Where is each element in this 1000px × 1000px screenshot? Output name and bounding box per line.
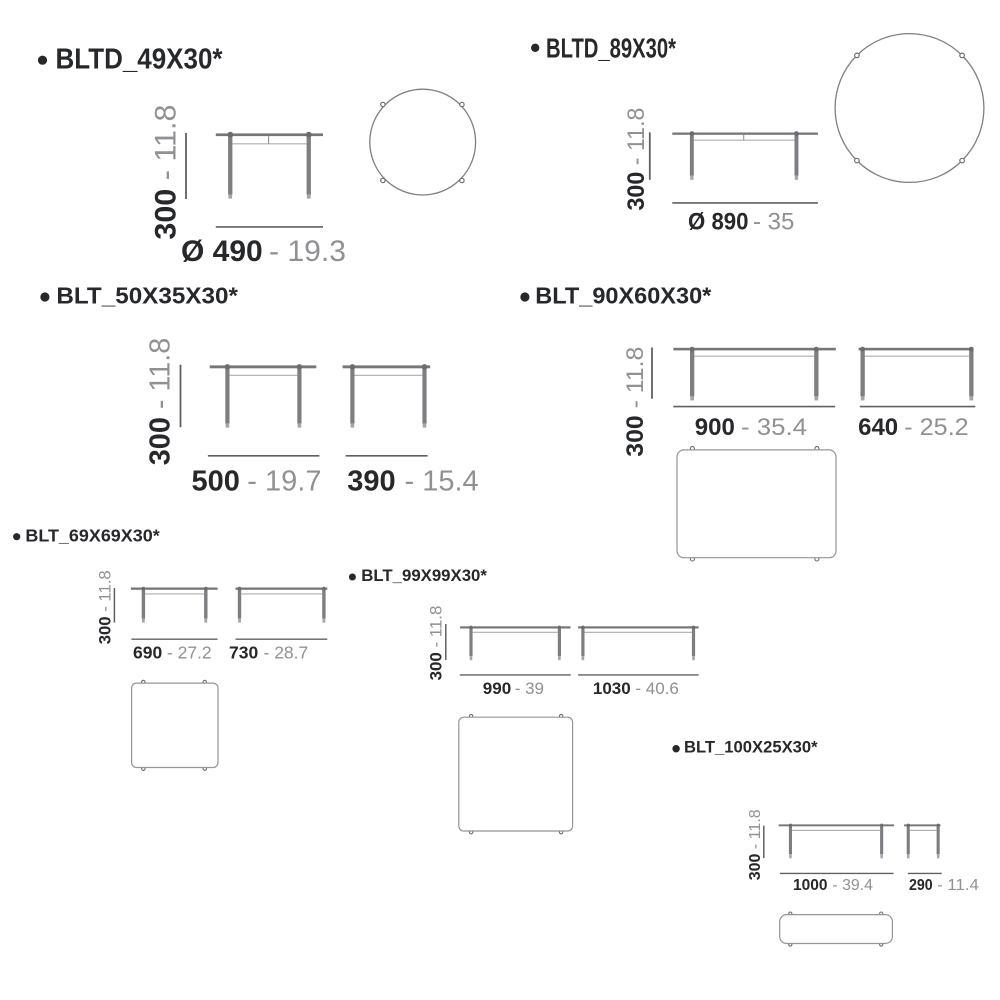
svg-text:BLTD_49X30*: BLTD_49X30* (56, 44, 224, 76)
svg-text:290: 290 (909, 877, 933, 894)
svg-text:- 11.4: - 11.4 (937, 877, 979, 894)
svg-text:Ø 490: Ø 490 (181, 235, 263, 268)
svg-text:300 - 11.8: 300 - 11.8 (747, 809, 764, 880)
svg-text:Ø 890: Ø 890 (688, 208, 749, 235)
svg-text:- 19.7: - 19.7 (247, 466, 321, 498)
svg-text:1000: 1000 (793, 877, 827, 894)
svg-text:390: 390 (347, 466, 395, 498)
svg-text:BLT_99X99X30*: BLT_99X99X30* (361, 567, 487, 585)
svg-text:BLTD_89X30*: BLTD_89X30* (546, 32, 676, 63)
svg-text:BLT_90X60X30*: BLT_90X60X30* (535, 283, 712, 309)
svg-text:- 39: - 39 (515, 679, 544, 698)
svg-text:- 27.2: - 27.2 (167, 643, 212, 663)
svg-text:300 - 11.8: 300 - 11.8 (623, 108, 650, 211)
svg-text:- 35: - 35 (753, 208, 794, 235)
svg-text:- 19.3: - 19.3 (269, 235, 346, 268)
svg-text:300 - 11.8: 300 - 11.8 (428, 606, 446, 681)
svg-text:300 - 11.8: 300 - 11.8 (149, 105, 182, 240)
svg-text:BLT_50X35X30*: BLT_50X35X30* (56, 283, 238, 309)
svg-text:730: 730 (229, 643, 258, 663)
svg-text:900: 900 (695, 414, 735, 441)
svg-text:1030: 1030 (593, 679, 631, 698)
svg-text:300 - 11.8: 300 - 11.8 (96, 570, 114, 644)
svg-text:BLT_100X25X30*: BLT_100X25X30* (684, 739, 818, 757)
svg-text:- 25.2: - 25.2 (904, 414, 968, 441)
svg-text:300 - 11.8: 300 - 11.8 (144, 338, 176, 466)
svg-text:- 40.6: - 40.6 (635, 679, 678, 698)
svg-text:BLT_69X69X30*: BLT_69X69X30* (25, 526, 159, 546)
svg-text:690: 690 (133, 643, 162, 663)
svg-text:- 28.7: - 28.7 (264, 643, 309, 663)
svg-text:300 - 11.8: 300 - 11.8 (622, 347, 649, 457)
svg-text:500: 500 (192, 466, 240, 498)
svg-text:- 35.4: - 35.4 (741, 414, 807, 441)
svg-text:990: 990 (483, 679, 511, 698)
svg-text:640: 640 (858, 414, 898, 441)
svg-text:- 15.4: - 15.4 (405, 466, 479, 498)
svg-text:- 39.4: - 39.4 (832, 877, 873, 894)
